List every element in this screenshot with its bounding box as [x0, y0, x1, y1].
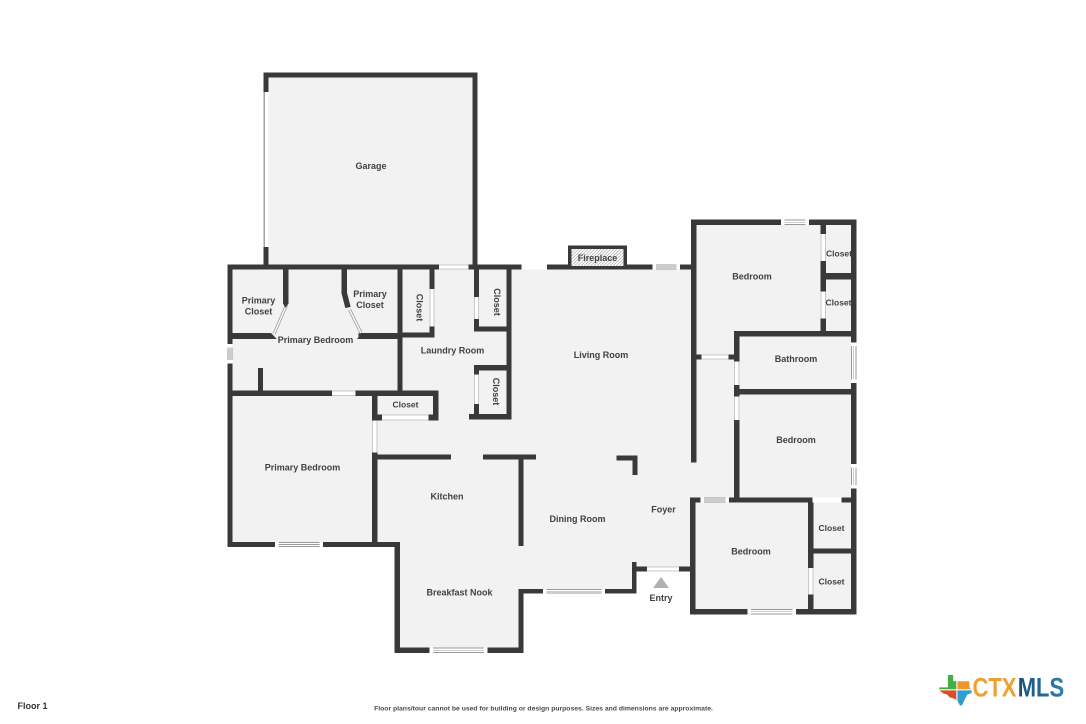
svg-text:Bathroom: Bathroom [775, 354, 818, 364]
svg-text:Primary Bedroom: Primary Bedroom [265, 463, 341, 473]
svg-text:Closet: Closet [826, 249, 852, 259]
svg-text:Closet: Closet [491, 378, 501, 406]
svg-text:Primary: Primary [353, 289, 387, 299]
svg-text:Closet: Closet [826, 298, 852, 308]
svg-text:Floor 1: Floor 1 [18, 701, 48, 711]
svg-text:Laundry Room: Laundry Room [421, 346, 485, 356]
svg-text:Closet: Closet [415, 294, 425, 322]
svg-text:Closet: Closet [393, 400, 419, 410]
svg-text:MLS: MLS [1018, 674, 1064, 703]
svg-text:Breakfast Nook: Breakfast Nook [426, 588, 493, 598]
svg-text:Closet: Closet [819, 577, 845, 587]
svg-text:Entry: Entry [649, 593, 672, 603]
svg-text:CTX: CTX [973, 674, 1018, 703]
svg-text:Closet: Closet [819, 523, 845, 533]
svg-text:Closet: Closet [492, 288, 502, 316]
svg-text:Living Room: Living Room [574, 350, 629, 360]
svg-text:Primary: Primary [242, 296, 276, 306]
svg-text:Bedroom: Bedroom [731, 547, 771, 557]
svg-text:Garage: Garage [355, 161, 386, 171]
svg-text:Closet: Closet [245, 307, 273, 317]
svg-text:Fireplace: Fireplace [578, 253, 618, 263]
svg-text:Closet: Closet [356, 300, 384, 310]
svg-text:Primary Bedroom: Primary Bedroom [278, 335, 354, 345]
svg-text:Dining Room: Dining Room [550, 514, 606, 524]
svg-text:Kitchen: Kitchen [430, 492, 463, 502]
svg-text:Foyer: Foyer [651, 505, 676, 515]
svg-text:Bedroom: Bedroom [776, 435, 816, 445]
svg-text:Floor plans/tour cannot be use: Floor plans/tour cannot be used for buil… [374, 706, 713, 713]
svg-text:Bedroom: Bedroom [732, 272, 772, 282]
